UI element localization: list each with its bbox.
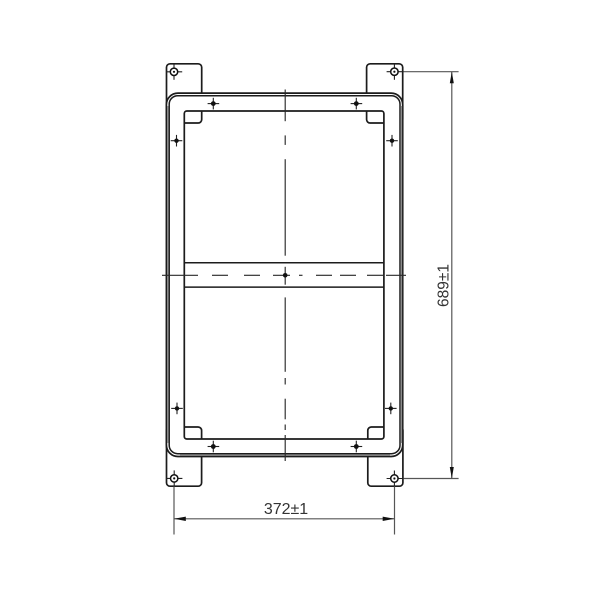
svg-text:689±1: 689±1 [435,264,452,307]
svg-text:372±1: 372±1 [264,501,308,518]
